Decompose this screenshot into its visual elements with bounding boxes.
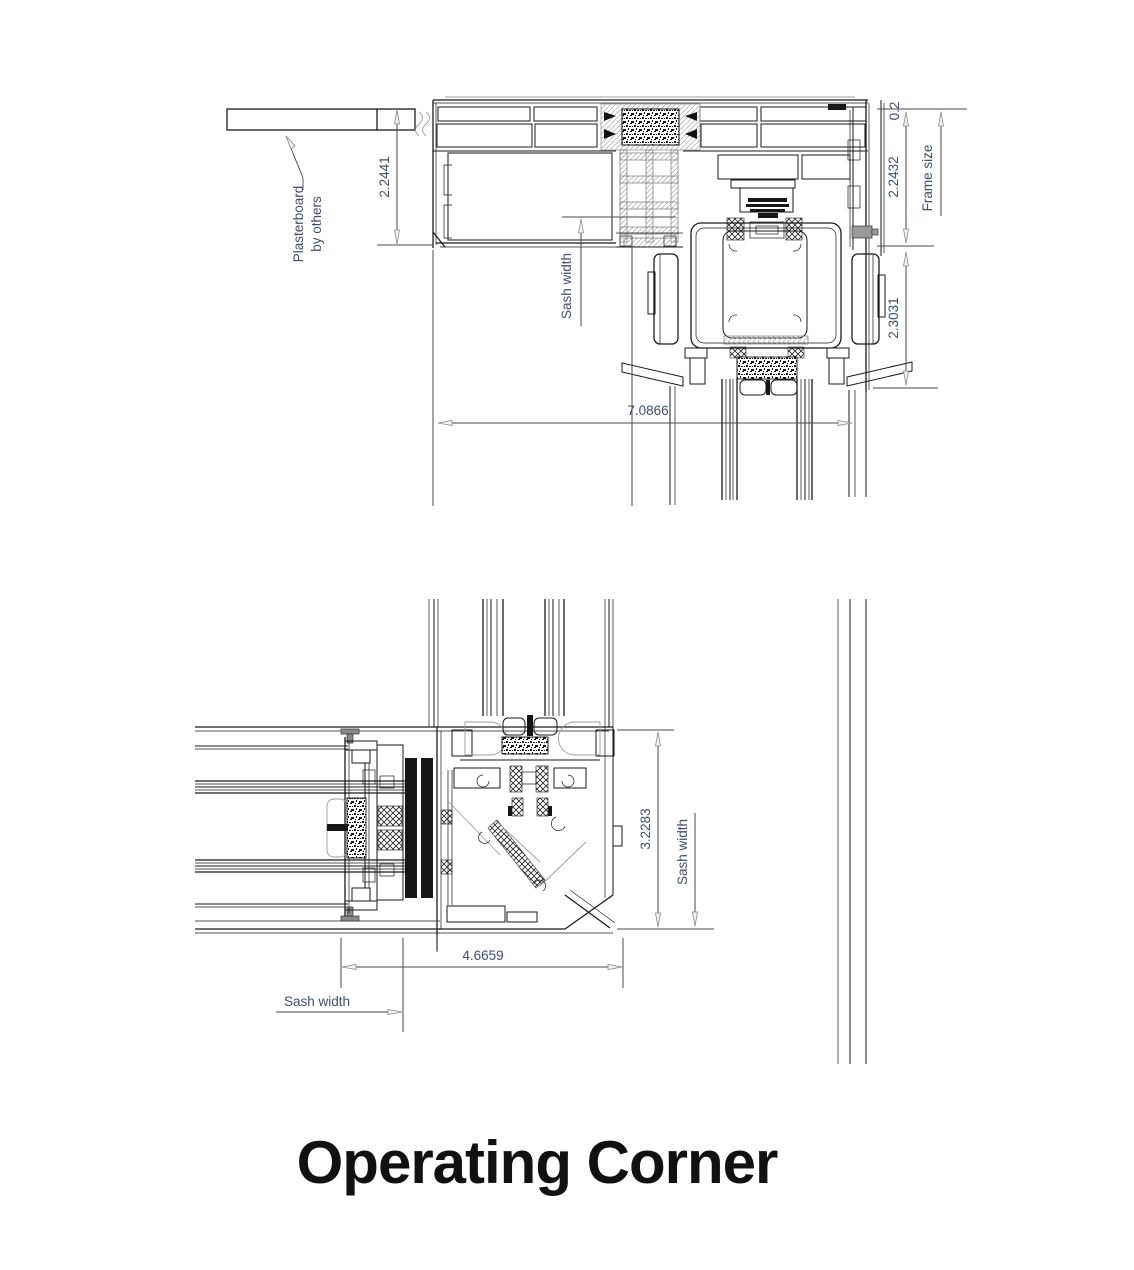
sash-width-label-bottom-right: Sash width xyxy=(675,819,690,885)
sash-profile xyxy=(648,223,885,348)
frame-size-label: Frame size xyxy=(920,145,935,212)
dim-2-3031: 2.3031 xyxy=(886,297,901,338)
dim-4-6659: 4.6659 xyxy=(462,948,503,963)
dim-2-2441: 2.2441 xyxy=(377,156,392,197)
plasterboard-label-line1: Plasterboard xyxy=(291,186,306,263)
exterior-wall-lines xyxy=(838,599,866,1064)
dim-7-0866: 7.0866 xyxy=(627,403,668,418)
mullion-thermal-break xyxy=(601,104,700,247)
glazing-bead-zone xyxy=(622,347,912,395)
corner-section-dimensions: 3.2283 Sash width 4.6659 Sash width xyxy=(276,730,714,1032)
dim-2-2432: 2.2432 xyxy=(886,156,901,197)
technical-drawing-page: Plasterboard by others 2.2441 Sash width… xyxy=(0,0,1134,1270)
drawing-title: Operating Corner xyxy=(0,1128,1074,1197)
corner-post xyxy=(437,715,622,950)
section-drawing-svg: Plasterboard by others 2.2441 Sash width… xyxy=(0,0,1134,1270)
mullion-ladder xyxy=(620,150,678,247)
left-sash-and-glass-lines xyxy=(195,727,613,933)
sash-width-label-bottom-left: Sash width xyxy=(284,994,350,1009)
left-sash-assembly xyxy=(327,729,433,921)
upper-frame-and-glass-lines xyxy=(429,599,613,727)
plasterboard-label-line2: by others xyxy=(309,196,324,252)
glass-unit-lines xyxy=(670,379,812,505)
dim-3-2283: 3.2283 xyxy=(638,808,653,849)
dim-0-2: 0.2 xyxy=(887,102,902,121)
sash-width-label-top: Sash width xyxy=(559,253,574,319)
